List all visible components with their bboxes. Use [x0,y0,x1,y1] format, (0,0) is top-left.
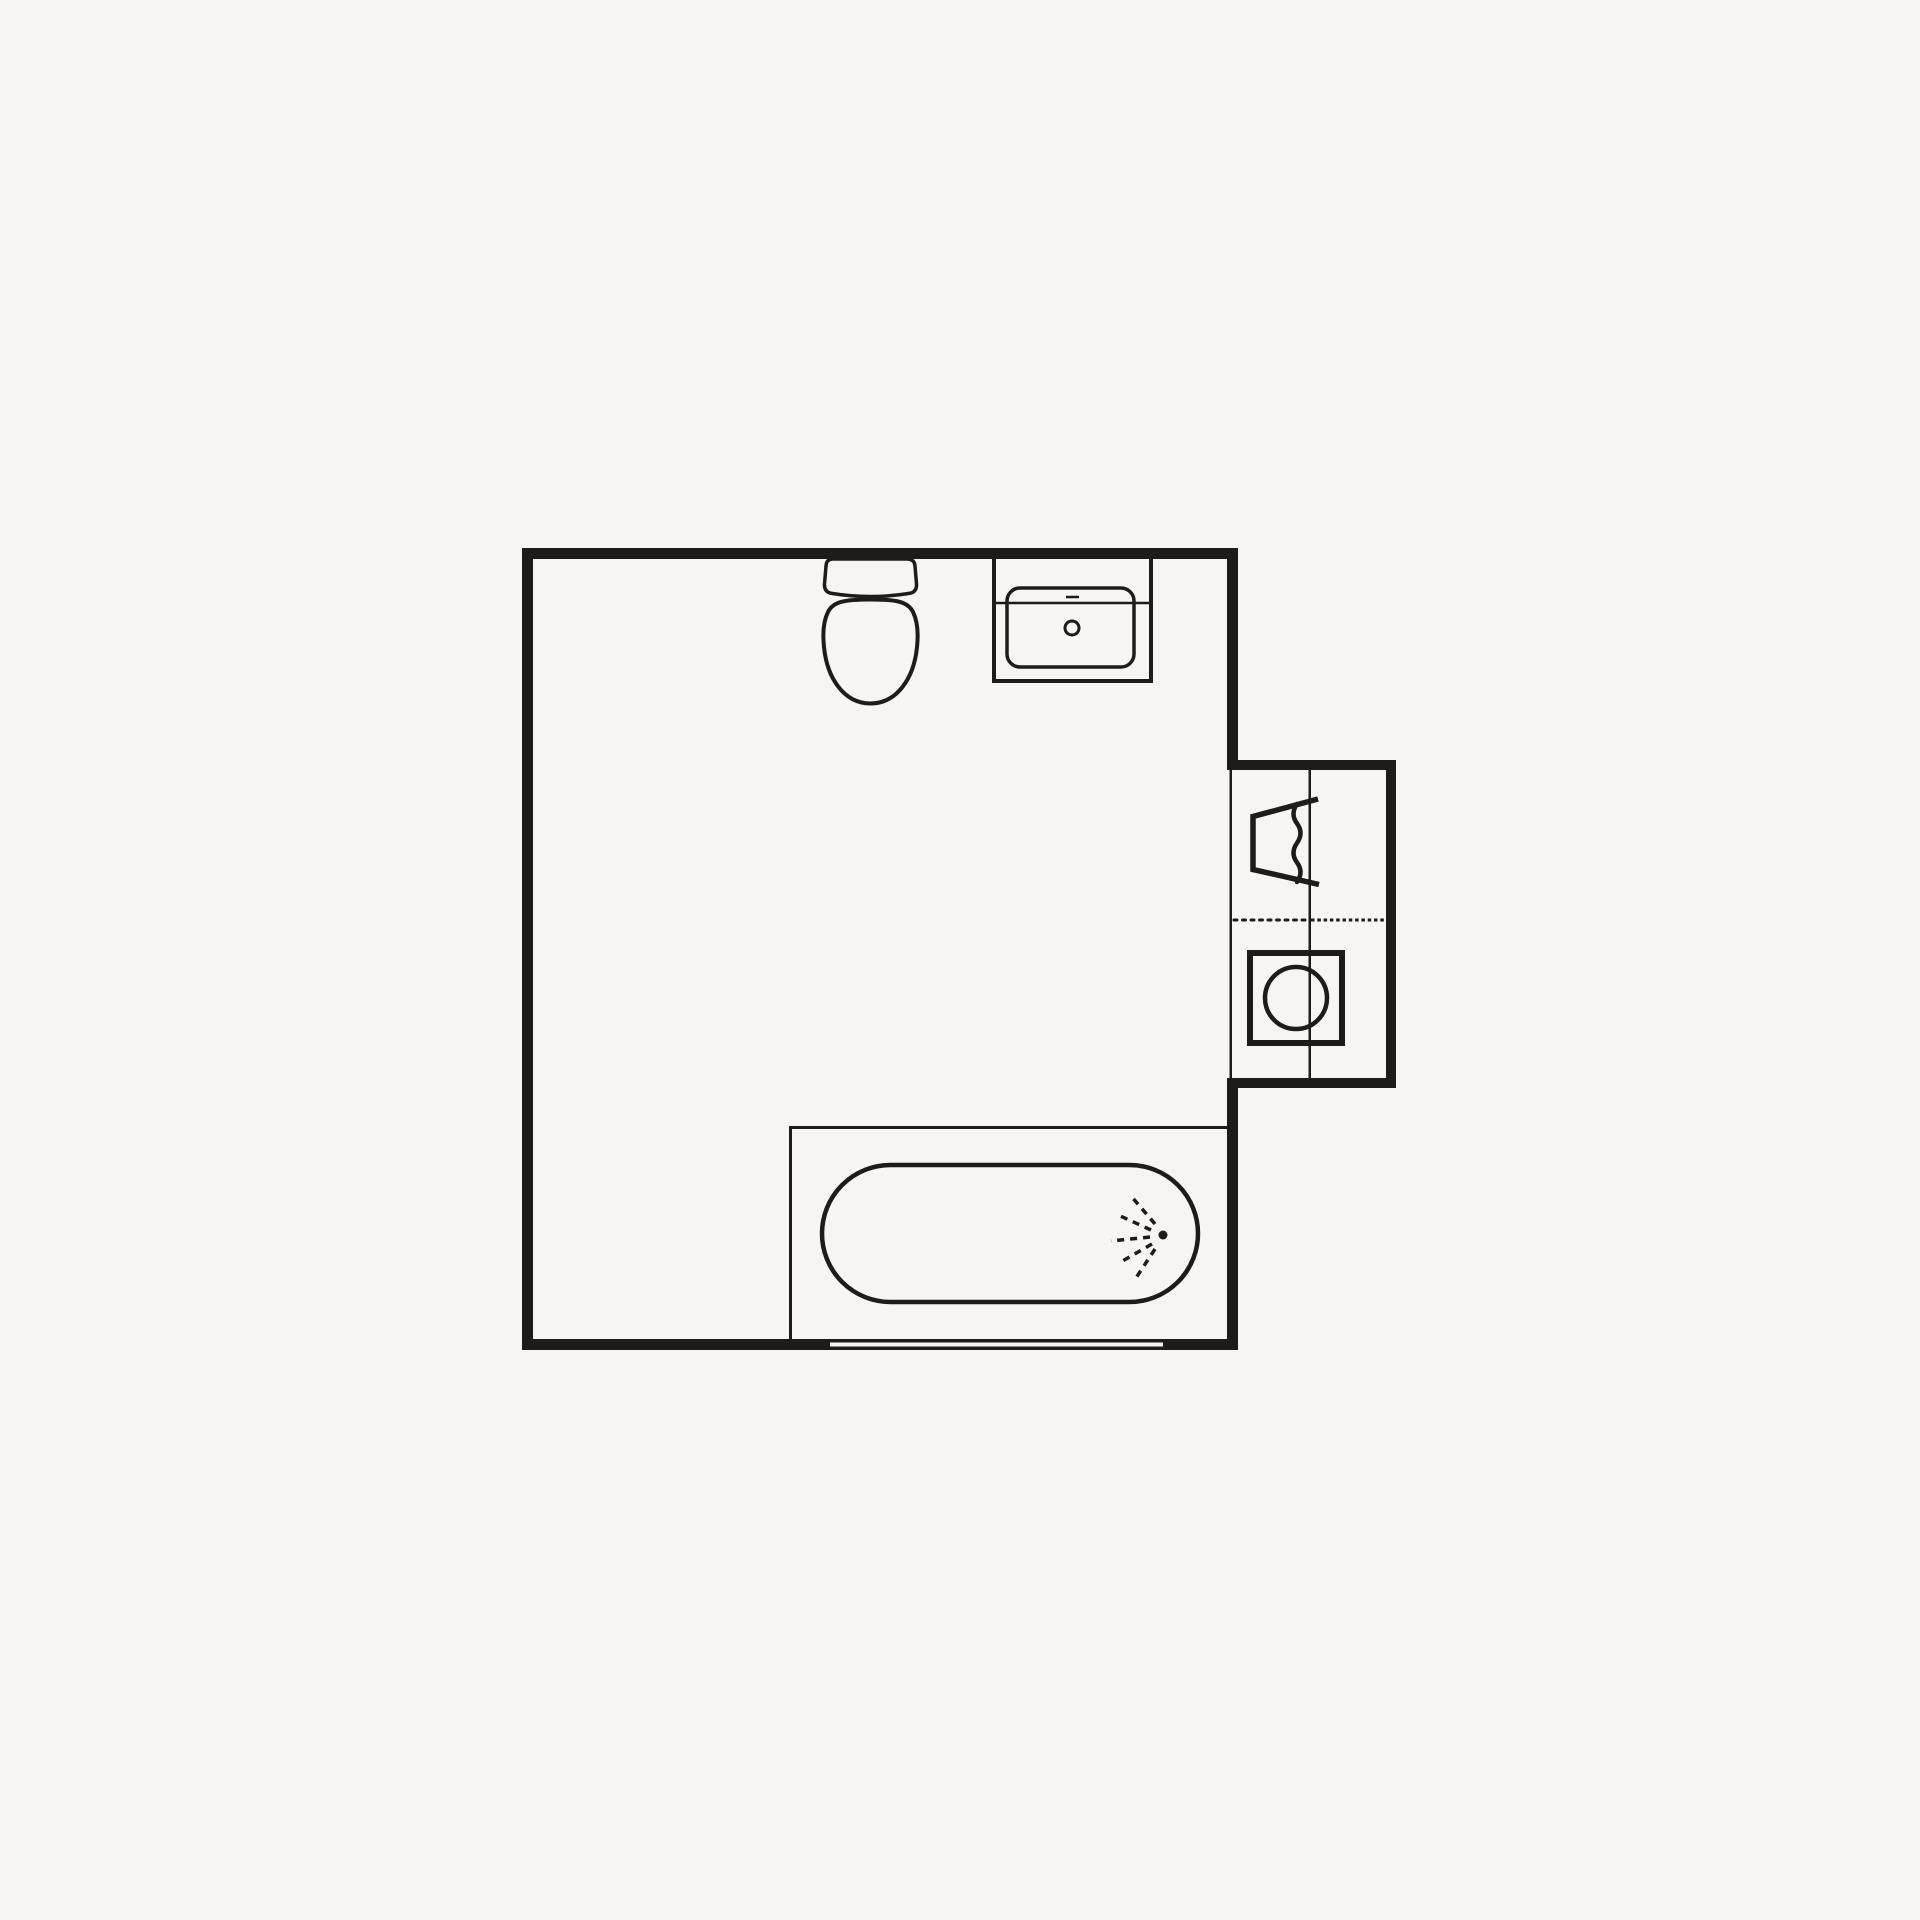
room-wall-right-upper [1227,548,1238,766]
floor-plan-svg [0,0,1920,1920]
tub-enclosure-left-line [789,1126,792,1339]
annex-wall-top [1227,760,1396,770]
shower-spray-ray-1 [1131,1196,1155,1224]
room-wall-right-lower [1227,1084,1238,1350]
toilet-bowl [823,600,917,704]
washbasin-counter [994,551,1151,681]
shower-origin-dot [1159,1231,1168,1240]
shower-spray-ray-2 [1116,1214,1151,1230]
annex-boundary-line [1230,766,1233,1084]
room-wall-left [522,548,533,1350]
annex-wall-right [1386,760,1396,1088]
tub-enclosure-top-line [789,1126,1227,1129]
annex-divider-line [1309,770,1312,1078]
laundry-trough-water-line [1294,804,1301,882]
washbasin-drain [1065,621,1079,635]
window-bottom-wall [830,1343,1163,1347]
toilet-tank [824,559,916,597]
bathtub [822,1165,1198,1302]
washing-machine-drum [1265,967,1327,1029]
stage [0,0,1920,1920]
washbasin-basin [1007,588,1134,667]
annex-wall-bottom [1227,1078,1396,1088]
shower-spray-ray-3 [1111,1237,1150,1241]
